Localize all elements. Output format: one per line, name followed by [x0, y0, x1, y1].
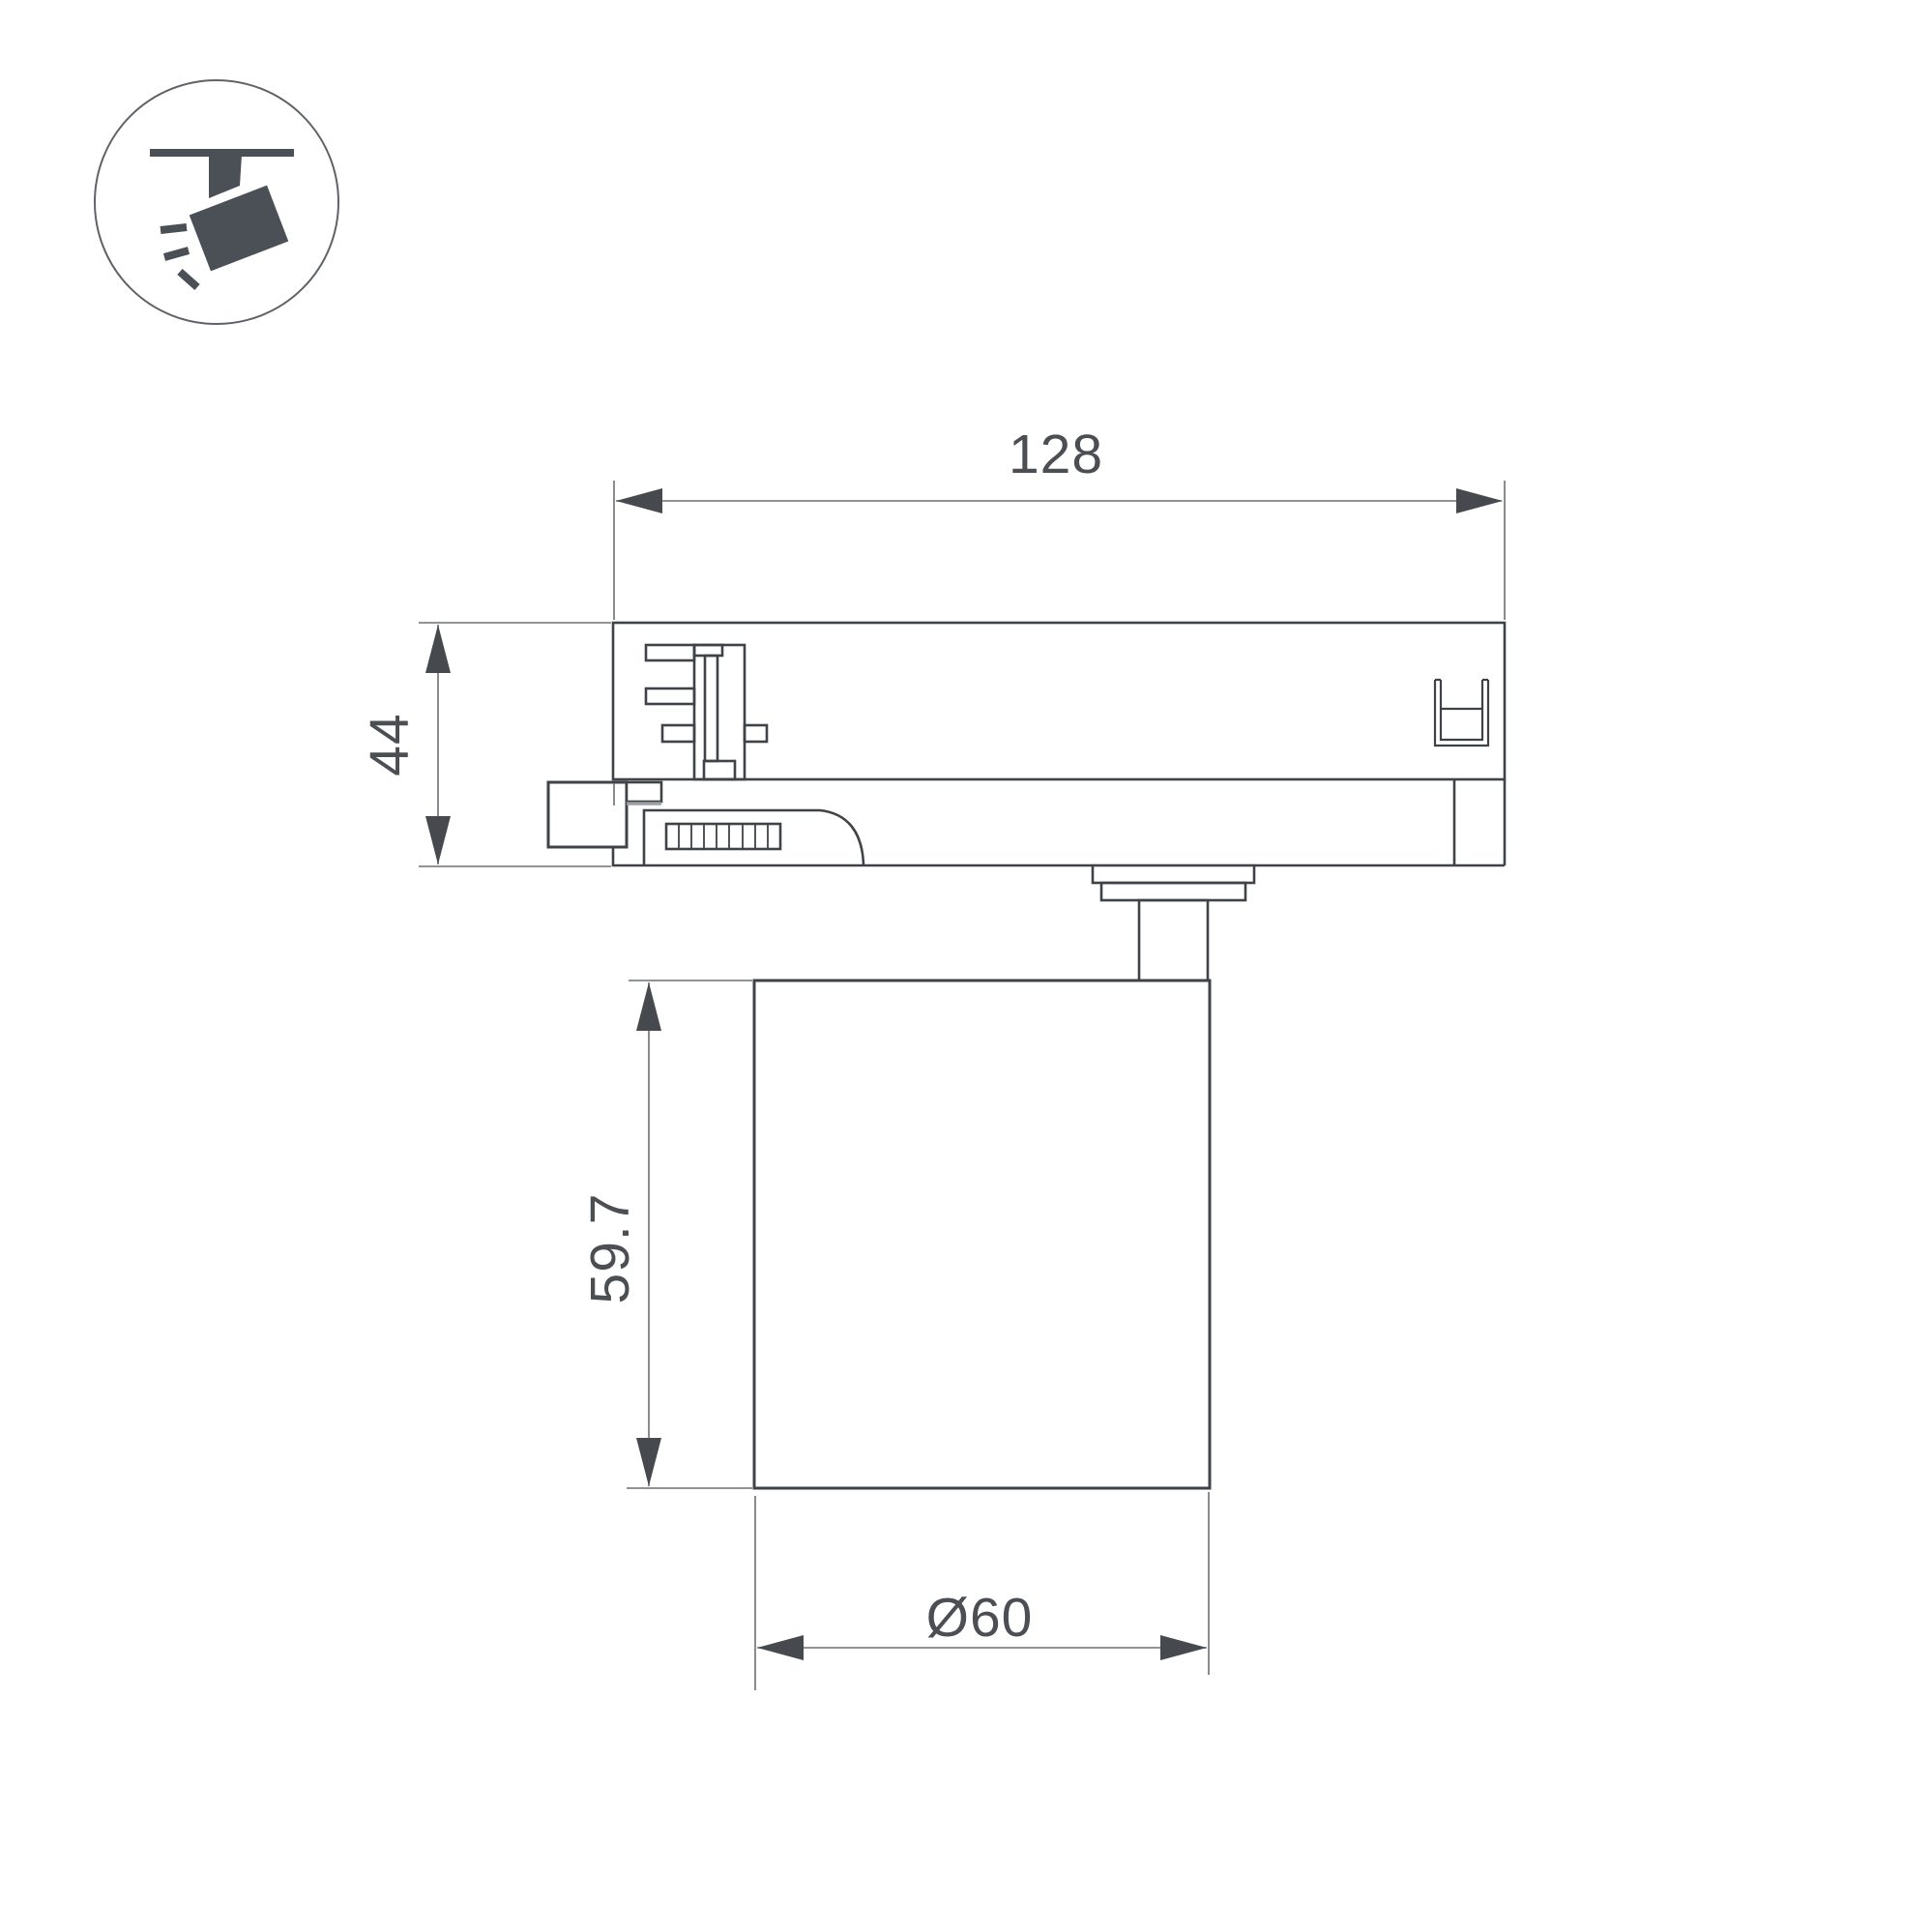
- arrow-up: [636, 982, 661, 1031]
- arrow-right: [1456, 488, 1503, 513]
- stem: [1139, 900, 1208, 981]
- icon-circle: [95, 80, 338, 324]
- slider-housing: [644, 810, 864, 865]
- ribbed-slider: [666, 824, 780, 849]
- connector-foot: [704, 761, 735, 779]
- dim-label-height: 44: [359, 713, 421, 776]
- lamp-body: [754, 981, 1210, 1488]
- drawing-canvas: 128 44 59.7 Ø60: [0, 0, 1932, 1932]
- connector-prong-bottom: [662, 725, 694, 742]
- arrow-down: [425, 816, 451, 864]
- flange-tier-2: [1101, 883, 1245, 900]
- arrow-left: [757, 1635, 804, 1660]
- arrow-up: [425, 625, 451, 673]
- connector-bolt: [705, 656, 717, 761]
- arrow-right: [1160, 1635, 1207, 1660]
- adapter-upper-box: [613, 623, 1505, 779]
- connector-prong-middle: [646, 688, 694, 704]
- mount-flange: [1093, 865, 1254, 981]
- end-clip: [1435, 680, 1488, 746]
- dim-label-width: 128: [1009, 424, 1103, 485]
- flange-tier-1: [1093, 865, 1254, 883]
- dimension-adapter-width: 128: [614, 424, 1505, 805]
- dimension-body-diameter: Ø60: [755, 1492, 1209, 1690]
- arrow-left: [616, 488, 662, 513]
- track-adapter-body: [548, 623, 1505, 865]
- connector-prong-top: [646, 645, 694, 660]
- connector-body: [694, 645, 745, 779]
- power-connector: [646, 645, 767, 779]
- dimension-body-height: 59.7: [579, 981, 752, 1488]
- arrow-down: [636, 1438, 661, 1486]
- latch-clip: [627, 782, 661, 802]
- connector-cap: [694, 645, 722, 656]
- dim-label-body-height: 59.7: [579, 1193, 641, 1304]
- connector-notch-right: [745, 725, 767, 742]
- latch-lever: [548, 782, 627, 847]
- dim-label-diameter: Ø60: [926, 1587, 1034, 1649]
- track-spotlight-icon: [95, 80, 338, 324]
